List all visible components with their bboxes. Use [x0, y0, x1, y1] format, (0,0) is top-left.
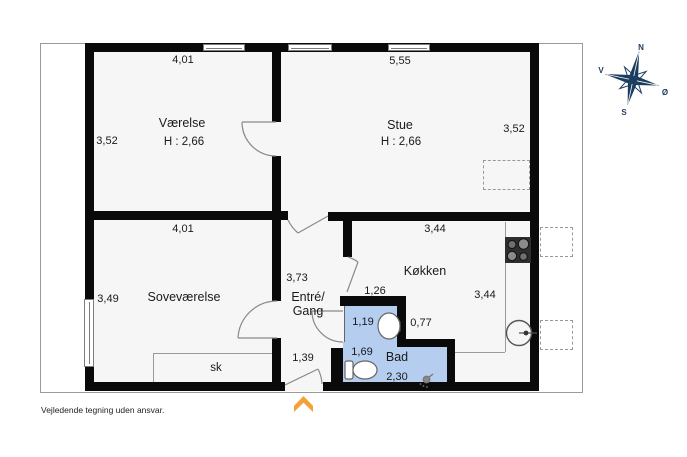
dim-sovevaerelse-left: 3,49: [97, 293, 118, 305]
dim-stue-top: 5,55: [389, 55, 410, 67]
dim-stue-right: 3,52: [503, 123, 524, 135]
dim-koekken-left: 1,26: [364, 285, 385, 297]
kitchen-sink-icon: [507, 321, 538, 346]
room-label-entre-line2: Gang: [291, 304, 324, 318]
room-label-koekken: Køkken: [404, 265, 446, 277]
room-label-sovevaerelse: Soveværelse: [148, 291, 221, 303]
dim-entrance-width: 1,39: [292, 352, 313, 364]
dim-sovevaerelse-top: 4,01: [172, 223, 193, 235]
door-swings: [238, 122, 358, 385]
toilet-icon: [345, 361, 377, 379]
room-label-stue: Stue: [387, 119, 413, 131]
ceiling-height-vaerelse: H : 2,66: [164, 136, 204, 148]
compass-south-label: S: [621, 108, 627, 117]
ceiling-height-stue: H : 2,66: [381, 136, 421, 148]
room-label-entre: Entré/ Gang: [291, 290, 324, 318]
disclaimer-note: Vejledende tegning uden ansvar.: [41, 405, 164, 415]
plan-overlay: N S Ø V: [0, 0, 687, 457]
shower-icon: [420, 374, 433, 388]
compass-rose-icon: N S Ø V: [598, 43, 668, 117]
dim-koekken-right: 3,44: [474, 289, 495, 301]
door-vaerelse: [242, 122, 276, 156]
room-label-bad: Bad: [386, 351, 408, 363]
dim-bad-bottom: 2,30: [386, 371, 407, 383]
stove-icon: [505, 237, 531, 263]
floor-plan: sk: [0, 0, 687, 457]
compass-west-label: V: [598, 66, 604, 75]
dim-bad-step: 0,77: [410, 317, 431, 329]
room-label-entre-line1: Entré/: [291, 290, 324, 304]
dim-entre-length: 3,73: [286, 272, 307, 284]
dim-bad-top: 1,19: [352, 316, 373, 328]
dim-bad-left: 1,69: [351, 346, 372, 358]
door-koekken: [347, 257, 358, 292]
dim-vaerelse-left: 3,52: [96, 135, 117, 147]
door-sovevaerelse: [238, 301, 277, 338]
dim-vaerelse-top: 4,01: [172, 54, 193, 66]
compass-east-label: Ø: [662, 88, 668, 97]
door-entrance: [285, 369, 322, 385]
door-stue-entre: [288, 216, 328, 233]
compass-north-label: N: [638, 43, 644, 52]
bathroom-sink-icon: [378, 313, 400, 339]
dim-koekken-top: 3,44: [424, 223, 445, 235]
room-label-vaerelse: Værelse: [159, 117, 206, 129]
